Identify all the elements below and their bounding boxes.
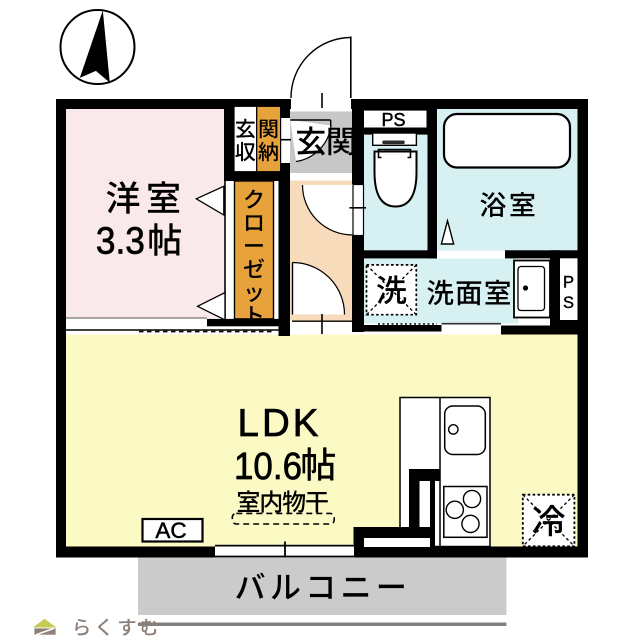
svg-text:PS: PS: [381, 110, 405, 130]
svg-text:P: P: [563, 274, 574, 292]
svg-text:LDK: LDK: [238, 402, 322, 445]
svg-text:AC: AC: [155, 518, 186, 543]
svg-text:10.6: 10.6: [234, 446, 302, 488]
svg-text:3.3: 3.3: [96, 221, 145, 263]
svg-text:S: S: [563, 294, 574, 312]
